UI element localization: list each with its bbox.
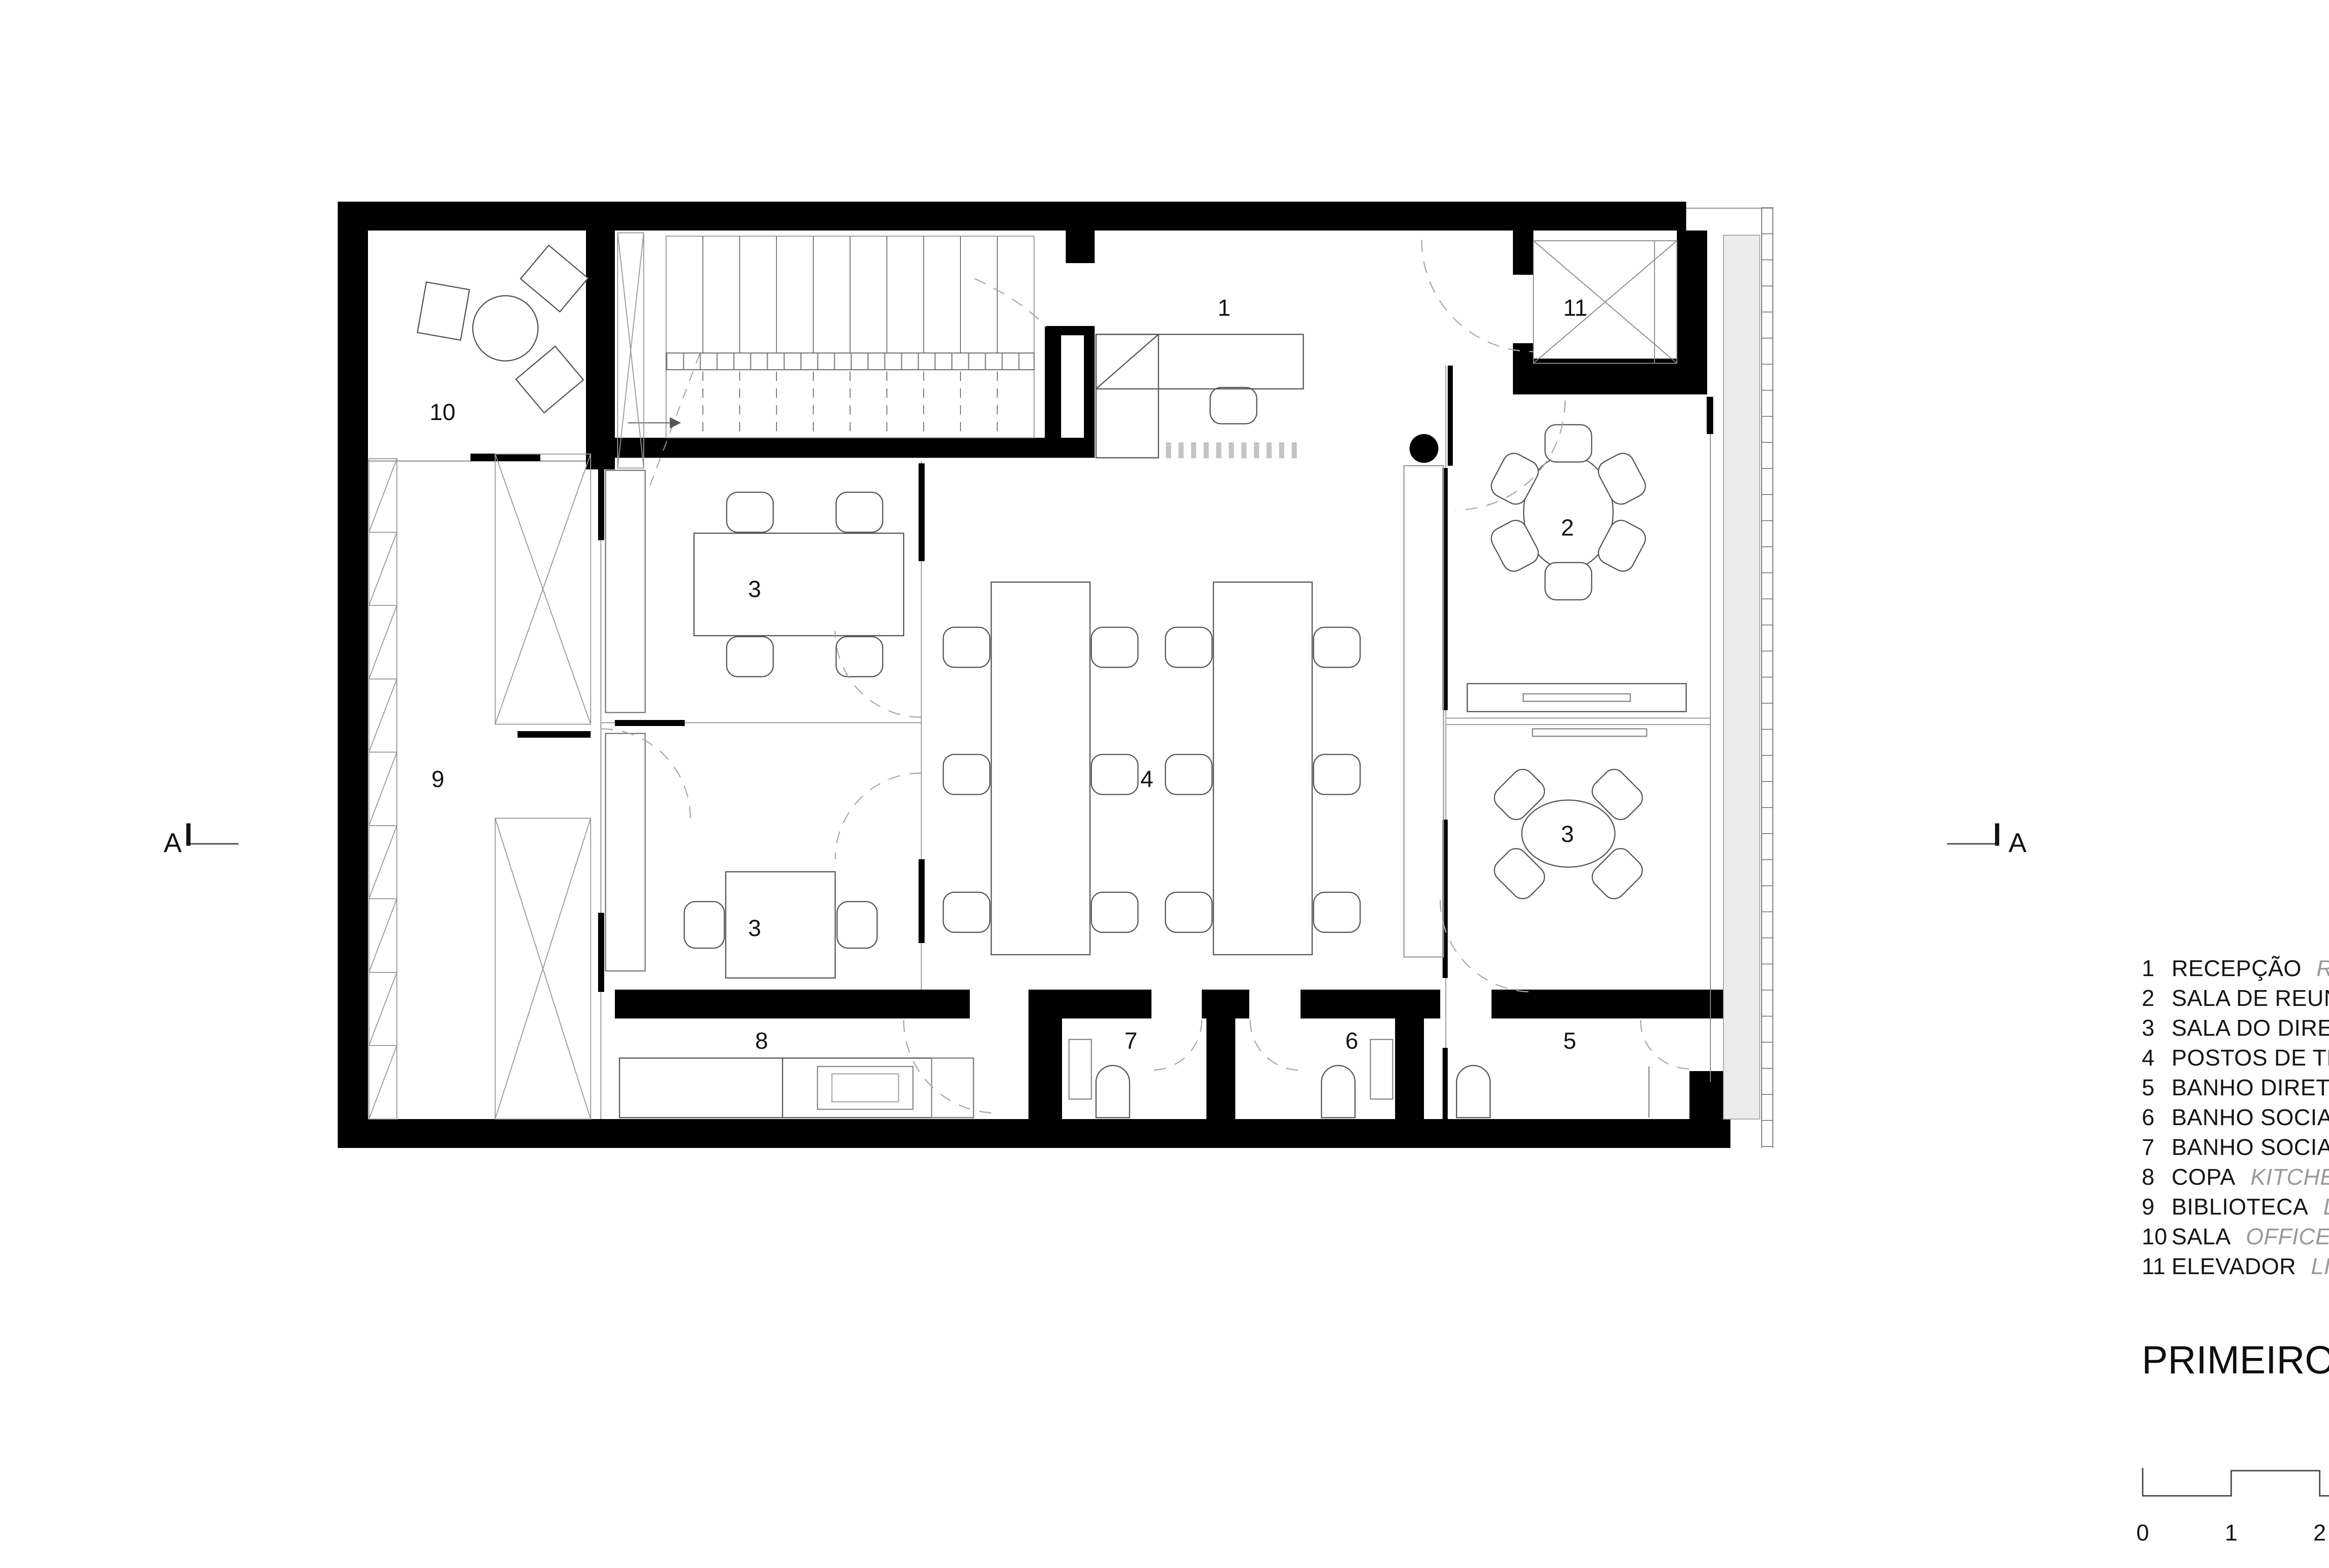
stair-treads-lower [703, 372, 997, 437]
glazing-mullion-2 [1707, 1082, 1713, 1119]
scale-bar-outline [2143, 1468, 2329, 1496]
wall-stair-door-header [1066, 231, 1095, 263]
door-arc-office-b [835, 773, 921, 859]
room-label-3-right: 3 [1561, 821, 1574, 847]
wall-stair-left [586, 231, 615, 469]
legend-name-en: RECEPTION [2316, 956, 2329, 981]
wall-bath-top-2 [1202, 990, 1249, 1018]
legend-num: 7 [2142, 1133, 2172, 1162]
legend-num: 5 [2142, 1073, 2172, 1103]
page: 1 2 3 4 5 6 7 8 9 10 11 3 3 A A 0 1 2 5 … [0, 0, 2329, 1568]
office-b [606, 733, 877, 978]
room-label-3-office-b: 3 [748, 915, 761, 941]
wall-kitchen-bath7 [1028, 990, 1062, 1148]
wall-elevator-bottom [1513, 359, 1707, 394]
wall-bath-top-3 [1301, 990, 1440, 1018]
legend: 1RECEPÇÃORECEPTION 2SALA DE REUNIÃOMEETI… [2142, 954, 2329, 1282]
wall-stair-bottom [586, 438, 1095, 458]
chair [684, 902, 724, 948]
chair [1165, 627, 1212, 667]
storage-cabinet [1404, 466, 1444, 957]
kitchen-counter [620, 1058, 974, 1118]
chair [1314, 754, 1360, 794]
legend-name-en: LIBRARY [2323, 1195, 2329, 1220]
work-table-1 [991, 582, 1090, 955]
cabinet-x-lower-cross [495, 818, 591, 1119]
room-label-4: 4 [1140, 766, 1153, 792]
chair [727, 637, 773, 677]
credenza [1467, 684, 1686, 712]
meeting-room [1467, 425, 1686, 736]
office-a-table [694, 533, 904, 636]
legend-name-pt: ELEVADOR [2172, 1254, 2296, 1279]
door-arc-bath5 [1440, 900, 1532, 992]
chair [1314, 892, 1360, 932]
section-letter-right: A [2009, 828, 2027, 858]
legend-item-10: 10SALAOFFICE [2142, 1222, 2329, 1252]
chair [943, 892, 990, 932]
legend-num: 2 [2142, 984, 2172, 1013]
bathrooms [1069, 1039, 1649, 1118]
bookshelf-cells [369, 459, 397, 1119]
elevator-x [1533, 241, 1677, 363]
legend-name-pt: COPA [2172, 1165, 2235, 1190]
legend-item-3: 3SALA DO DIRETORDIRECTOR'S OFFICE [2142, 1013, 2329, 1043]
credenza-detail [1523, 694, 1630, 701]
legend-item-8: 8COPAKITCHEN [2142, 1162, 2329, 1192]
chair [521, 245, 588, 312]
door-arc-bath7 [1151, 1020, 1202, 1070]
section-letter-left: A [163, 828, 182, 858]
scale-tick-1: 1 [2225, 1520, 2237, 1546]
stair-arrow-head [670, 417, 681, 428]
workspace [943, 466, 1444, 957]
stair-treads-upper [703, 236, 997, 353]
partition-seg [1443, 1048, 1448, 1119]
door-arc-stair [974, 278, 1046, 327]
legend-num: 11 [2142, 1252, 2172, 1282]
office-b-table [726, 872, 835, 978]
drawing-title: PRIMEIRO PAVIMENTOFIRST FLOOR [2142, 1337, 2329, 1383]
room-label-3-office-a: 3 [748, 576, 761, 602]
chair [1091, 892, 1138, 932]
chair [1091, 754, 1138, 794]
wall-kitchen-top [615, 990, 970, 1018]
chair [1165, 754, 1212, 794]
wall-bath-top-1 [1062, 990, 1151, 1018]
legend-name-pt: SALA DO DIRETOR [2172, 1016, 2329, 1041]
library-door-panel [518, 731, 591, 738]
chair [1545, 563, 1592, 600]
chair [836, 637, 883, 677]
scale-tick-0: 0 [2136, 1520, 2149, 1546]
partition-seg [1448, 366, 1453, 466]
reception-desk-return [1096, 334, 1158, 458]
shelf-room3 [1532, 729, 1647, 736]
legend-item-11: 11ELEVADORLIFT [2142, 1252, 2329, 1282]
wall-bath6-bath5 [1395, 1018, 1424, 1119]
legend-name-pt: RECEPÇÃO [2172, 956, 2302, 981]
round-table [473, 296, 538, 361]
legend-num: 9 [2142, 1192, 2172, 1222]
wall-stair-doorframe [1045, 326, 1095, 458]
chair [1091, 627, 1138, 667]
room-label-5: 5 [1563, 1028, 1576, 1054]
wall-bath7-bath6 [1206, 1018, 1235, 1119]
wall-elevator-left-top [1513, 231, 1533, 275]
legend-name-pt: BANHO DIRETOR [2172, 1075, 2329, 1100]
chair [943, 754, 990, 794]
chair [1314, 627, 1360, 667]
partition-seg [598, 461, 604, 540]
basin-6 [1370, 1039, 1393, 1099]
scale-bar: 0 1 2 5 [2136, 1468, 2329, 1546]
legend-item-4: 4POSTOS DE TRABALHOWORKSPACE [2142, 1043, 2329, 1073]
room-label-11: 11 [1563, 295, 1587, 321]
partition-seg [598, 913, 604, 992]
reception-desk-diagonal [1096, 334, 1158, 389]
legend-name-en: KITCHEN [2250, 1165, 2329, 1190]
section-bar-left [186, 823, 191, 846]
door-arc-terrace [1641, 1020, 1689, 1069]
legend-item-5: 5BANHO DIRETORPRIVATE BATHROOM [2142, 1073, 2329, 1103]
legend-name-en: OFFICE [2246, 1224, 2329, 1249]
terrace-floor [1723, 235, 1760, 1119]
sideboard [606, 470, 645, 713]
chair [1165, 892, 1212, 932]
door-arc-bath6 [1250, 1020, 1301, 1070]
wall-top [338, 202, 1686, 231]
partition-seg [615, 720, 685, 726]
kitchen-sink-basin [832, 1074, 899, 1102]
legend-name-en: LIFT [2311, 1254, 2329, 1279]
scale-tick-2: 2 [2313, 1520, 2326, 1546]
room-label-9: 9 [431, 766, 444, 792]
chair [516, 346, 584, 413]
partition-seg [919, 463, 925, 561]
chair [417, 282, 470, 340]
wall-bath5-terrace [1689, 1071, 1723, 1119]
legend-name-pt: BIBLIOTECA [2172, 1195, 2309, 1220]
legend-item-2: 2SALA DE REUNIÃOMEETING ROOM [2142, 984, 2329, 1013]
legend-num: 3 [2142, 1013, 2172, 1043]
legend-item-6: 6BANHO SOCIAL FEMININOBATHROOM [2142, 1103, 2329, 1133]
library [369, 454, 591, 1119]
room-label-2: 2 [1561, 515, 1574, 541]
toilet-5 [1457, 1066, 1490, 1118]
legend-num: 10 [2142, 1222, 2172, 1252]
legend-num: 4 [2142, 1043, 2172, 1073]
partition-seg [919, 859, 925, 943]
legend-item-9: 9BIBLIOTECALIBRARY [2142, 1192, 2329, 1222]
room-label-1: 1 [1218, 295, 1231, 321]
stair-landing-outline [666, 353, 1034, 370]
cabinet-x-upper-cross [495, 454, 591, 724]
legend-name-pt: SALA DE REUNIÃO [2172, 986, 2329, 1011]
room10-door-panel [470, 454, 540, 461]
stair-shaft-x [618, 233, 644, 468]
legend-name-pt: POSTOS DE TRABALHO [2172, 1045, 2329, 1071]
legend-num: 6 [2142, 1103, 2172, 1133]
door-arc-kitchen [904, 1020, 997, 1113]
room-label-8: 8 [755, 1028, 768, 1054]
reception-chair [1210, 387, 1257, 424]
chair [727, 492, 773, 532]
toilet-7 [1096, 1066, 1130, 1118]
legend-item-1: 1RECEPÇÃORECEPTION [2142, 954, 2329, 984]
room-label-6: 6 [1345, 1028, 1358, 1054]
elevator [1533, 241, 1677, 363]
basin-7 [1069, 1039, 1091, 1099]
room-label-10: 10 [429, 399, 456, 425]
chair [837, 902, 877, 948]
column [1410, 434, 1438, 463]
legend-item-7: 7BANHO SOCIAL MASCULINOBATHROOM [2142, 1133, 2329, 1162]
kitchen [620, 1058, 974, 1118]
legend-name-pt: BANHO SOCIAL FEMININO [2172, 1105, 2329, 1130]
reception [1096, 334, 1438, 463]
chair [836, 492, 883, 532]
floor-plan: 1 2 3 4 5 6 7 8 9 10 11 3 3 A A 0 1 2 5 [0, 0, 2329, 1568]
chair [943, 627, 990, 667]
toilet-6 [1321, 1066, 1355, 1118]
section-bar-right [1995, 823, 1999, 846]
work-table-2 [1213, 582, 1312, 955]
glazing-mullion-1 [1707, 397, 1713, 434]
wall-left [338, 202, 368, 1148]
room-10 [368, 245, 588, 461]
title-pt: PRIMEIRO PAVIMENTO [2142, 1338, 2329, 1382]
legend-name-pt: SALA [2172, 1224, 2231, 1249]
legend-num: 1 [2142, 954, 2172, 984]
wall-bath-top-4 [1491, 990, 1723, 1018]
legend-num: 8 [2142, 1162, 2172, 1192]
legend-name-pt: BANHO SOCIAL MASCULINO [2172, 1135, 2329, 1160]
room-label-7: 7 [1124, 1028, 1137, 1054]
sideboard [606, 733, 645, 971]
chair [1545, 425, 1592, 462]
